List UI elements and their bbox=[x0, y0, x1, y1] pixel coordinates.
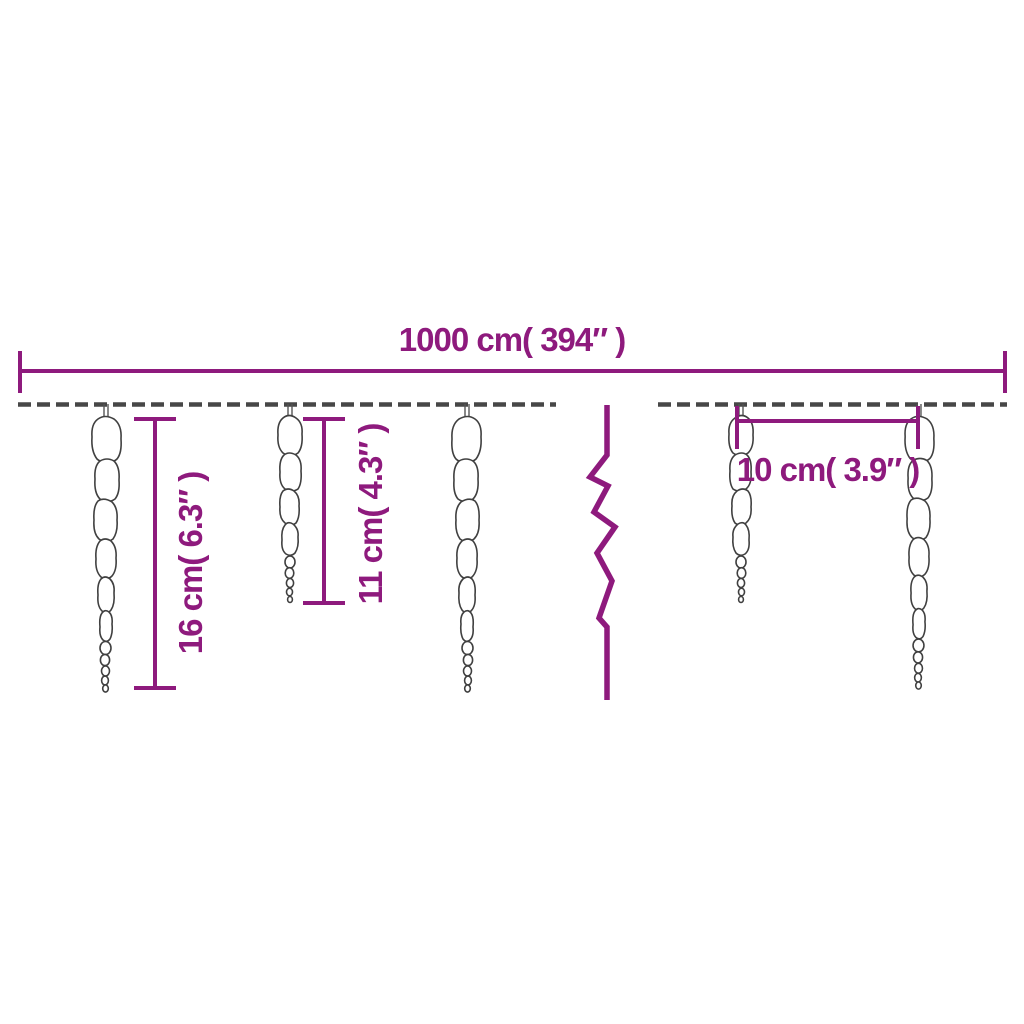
short-icicle-bottom-cap bbox=[303, 601, 345, 605]
icicle-illustration-1 bbox=[84, 404, 128, 694]
total-length-dimension-line bbox=[20, 369, 1005, 373]
icicle-spacing-label: 10 cm( 3.9″ ) bbox=[737, 452, 920, 488]
long-icicle-dimension-line bbox=[153, 419, 157, 688]
spacing-right-cap bbox=[916, 406, 920, 449]
long-icicle-top-cap bbox=[134, 417, 176, 421]
icicle-illustration-3 bbox=[445, 404, 489, 694]
icicle-illustration-2 bbox=[270, 404, 310, 604]
product-dimension-diagram: 1000 cm( 394″ ) 16 cm( 6.3″ ) 11 cm( 4.3… bbox=[0, 0, 1024, 1024]
long-icicle-bottom-cap bbox=[134, 686, 176, 690]
icicle-illustration-4 bbox=[721, 404, 761, 604]
short-icicle-height-label: 11 cm( 4.3″ ) bbox=[353, 424, 389, 605]
long-icicle-height-label: 16 cm( 6.3″ ) bbox=[173, 472, 209, 655]
total-length-left-cap bbox=[18, 351, 22, 393]
total-length-right-cap bbox=[1003, 351, 1007, 393]
spacing-dimension-line bbox=[737, 419, 920, 423]
total-length-label: 1000 cm( 394″ ) bbox=[0, 322, 1024, 358]
spacing-left-cap bbox=[735, 406, 739, 449]
short-icicle-top-cap bbox=[303, 417, 345, 421]
light-string-wire bbox=[0, 400, 1024, 410]
short-icicle-dimension-line bbox=[322, 419, 326, 605]
length-break-zigzag bbox=[582, 398, 632, 708]
